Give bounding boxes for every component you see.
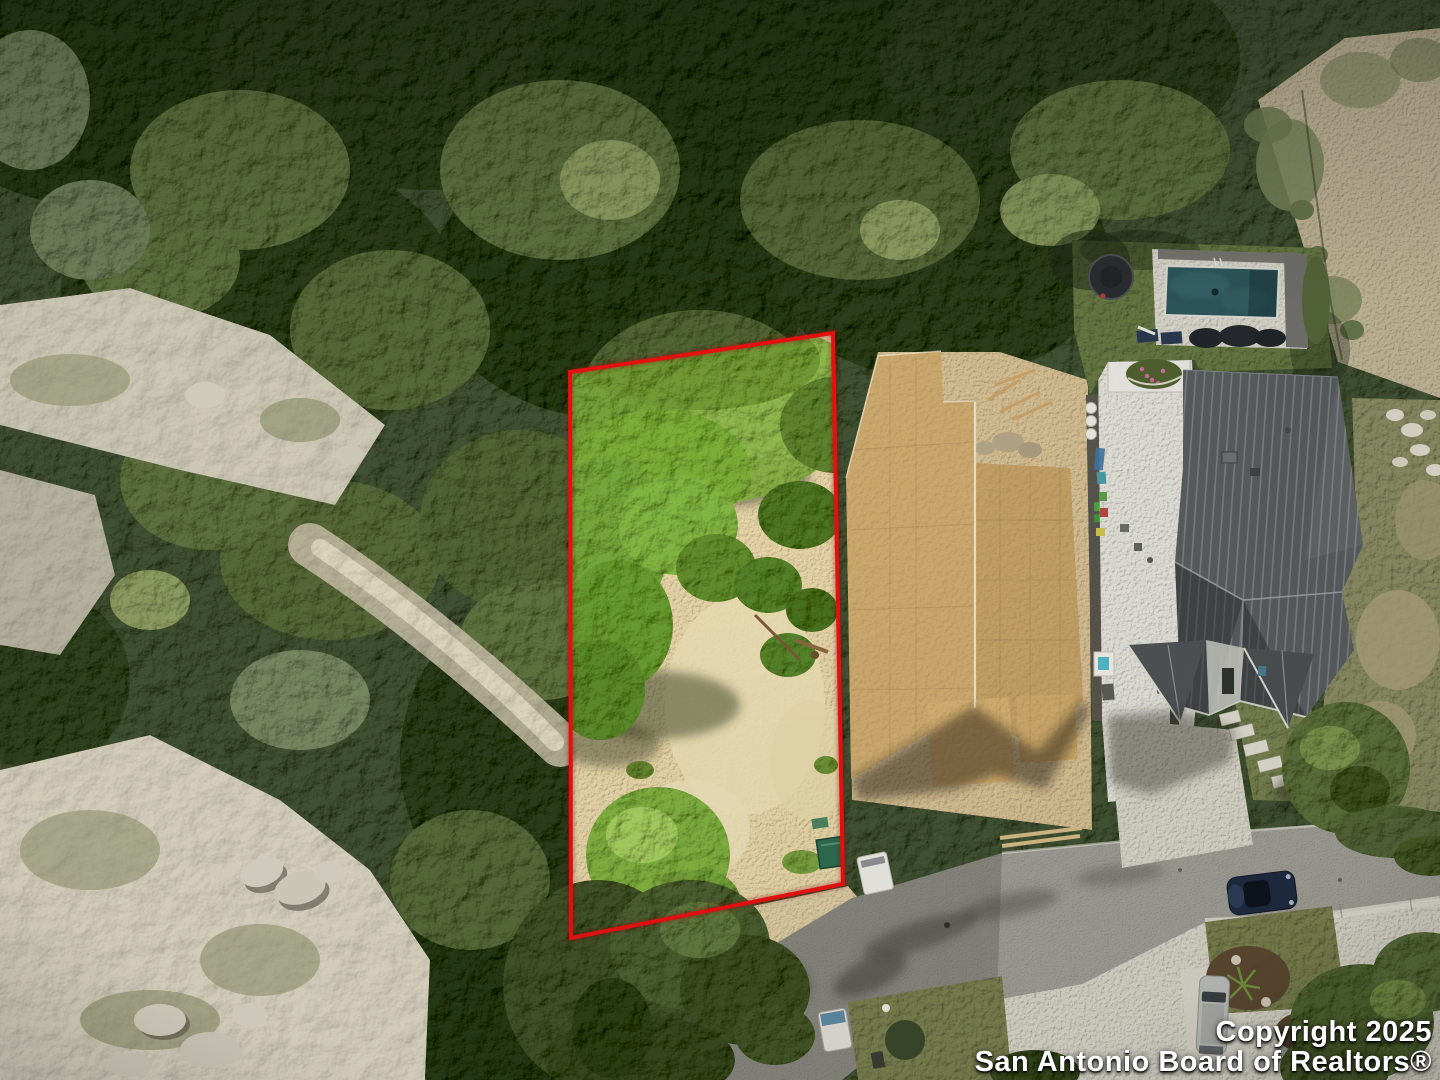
vignette (0, 0, 1440, 1080)
watermark-line2: San Antonio Board of Realtors® (975, 1047, 1432, 1078)
aerial-photo-canvas (0, 0, 1440, 1080)
watermark-line1: Copyright 2025 (975, 1017, 1432, 1048)
copyright-watermark: Copyright 2025 San Antonio Board of Real… (975, 1017, 1432, 1078)
aerial-photo: Copyright 2025 San Antonio Board of Real… (0, 0, 1440, 1080)
